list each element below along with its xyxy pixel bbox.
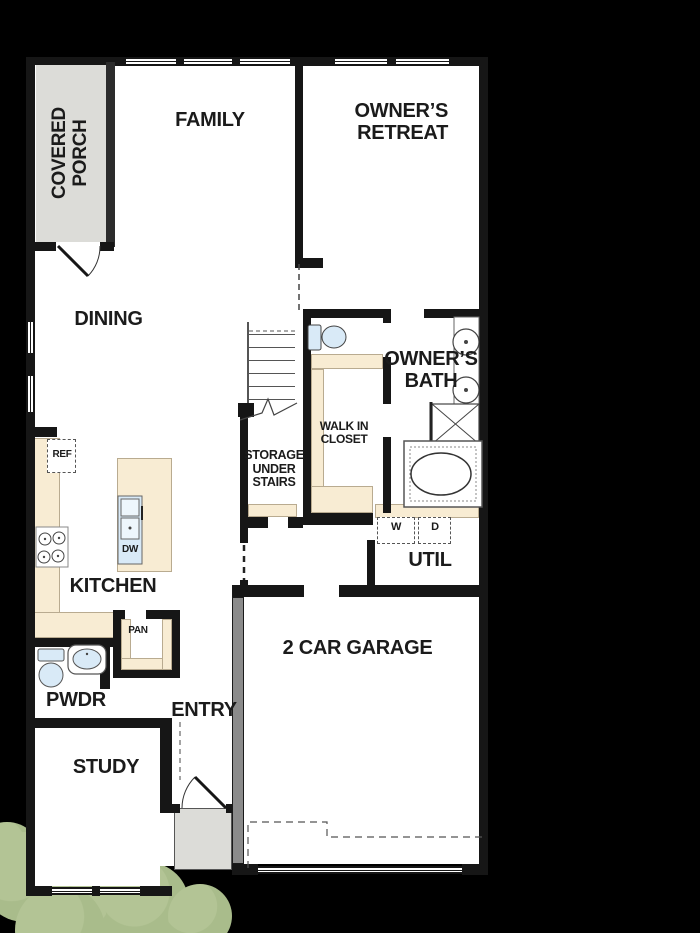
wall-pwdr-right — [100, 647, 110, 689]
wall-kitchen-dining-stub — [26, 427, 57, 437]
pantry-shelf-right — [162, 619, 172, 670]
wall-closet-bottom — [303, 513, 373, 525]
wall-study-right — [160, 728, 172, 812]
room-label-covered-porch: COVERED PORCH — [46, 93, 96, 213]
room-label-storage: STORAGE UNDER STAIRS — [243, 449, 305, 490]
wall-retreat-bottom — [303, 309, 391, 318]
window — [52, 887, 92, 895]
room-label-owners-bath: OWNER’S BATH — [377, 349, 485, 392]
room-label-pwdr: PWDR — [45, 690, 107, 712]
wall-porch-left — [26, 57, 35, 250]
wall-bath-divider — [383, 309, 391, 323]
wall-garage-top — [339, 585, 479, 597]
wall-family-retreat-notch — [295, 258, 323, 268]
wall-study-bottom — [92, 886, 100, 896]
room-label-util: UTIL — [405, 550, 455, 572]
room-label-pan: PAN — [127, 626, 149, 637]
room-label-family: FAMILY — [165, 110, 255, 132]
appliance-label-dw: DW — [119, 545, 141, 556]
wall-garage-left — [232, 597, 244, 864]
wall-pan-left — [113, 610, 121, 678]
wall-door-stub — [226, 804, 232, 813]
wall-right — [479, 57, 488, 875]
window — [100, 887, 140, 895]
appliance-label-dryer: D — [420, 522, 450, 534]
window — [335, 57, 387, 66]
closet-shelf-bottom — [311, 486, 373, 513]
wall-storage-corner — [238, 403, 254, 417]
wall-bath-divider — [383, 437, 391, 513]
room-label-entry: ENTRY — [173, 700, 235, 722]
window — [26, 376, 35, 412]
study-floor — [34, 808, 160, 886]
room-label-walk-in-closet: WALK IN CLOSET — [310, 420, 378, 446]
entry-stoop-slab — [174, 808, 232, 870]
wall-pan-right — [172, 610, 180, 678]
wall-wc-left — [303, 309, 311, 356]
staircase — [247, 322, 295, 412]
window — [396, 57, 449, 66]
wall-storage-bottom — [240, 517, 268, 528]
window — [26, 322, 35, 353]
wall-pan-top — [146, 610, 180, 619]
hall-floor — [160, 813, 174, 866]
wall-porch-top — [26, 57, 114, 65]
wall-family-retreat — [295, 62, 303, 262]
wall-garage-door-corner — [462, 864, 488, 875]
window — [240, 57, 290, 66]
wall-study-bottom — [26, 886, 52, 896]
window — [184, 57, 232, 66]
kitchen-counter-bottom — [34, 612, 117, 638]
wall-pan-bottom — [113, 670, 180, 678]
wall-study-bottom — [140, 886, 172, 896]
closet-shelf-top — [311, 354, 383, 369]
room-label-owners-retreat: OWNER’S RETREAT — [333, 101, 448, 144]
window — [126, 57, 176, 66]
wall-garage-door-corner — [232, 864, 258, 875]
garage-door — [258, 866, 462, 874]
wall-door-stub — [160, 804, 180, 813]
room-label-study: STUDY — [70, 757, 142, 779]
appliance-label-ref: REF — [49, 450, 75, 461]
tree — [168, 884, 232, 933]
wall-study-top — [28, 718, 172, 728]
wall-storage-bottom — [288, 517, 303, 528]
floor-plan: COVERED PORCH FAMILY OWNER’S RETREAT DIN… — [0, 0, 700, 933]
room-label-kitchen: KITCHEN — [63, 576, 163, 598]
wall-porch-bottom — [100, 242, 114, 251]
wall-garage-top — [232, 585, 304, 597]
room-label-dining: DINING — [66, 309, 151, 331]
appliance-label-washer: W — [380, 522, 412, 534]
wall-pwdr-top — [28, 638, 117, 647]
wall-pan-top — [113, 610, 125, 619]
wall-retreat-bottom — [424, 309, 479, 318]
storage-shelf — [248, 504, 297, 517]
room-label-garage: 2 CAR GARAGE — [285, 638, 430, 660]
wall-porch-right — [106, 62, 115, 247]
